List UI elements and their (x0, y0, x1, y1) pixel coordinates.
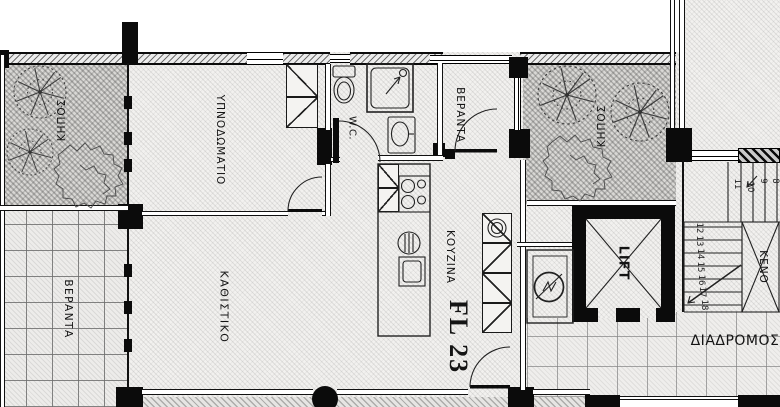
room-label-kitchen: ΚΟΥΖΙΝΑ (444, 230, 456, 284)
south-wall (337, 389, 468, 395)
bedroom-wc-wall (325, 64, 331, 130)
stair-number: 11 (732, 179, 742, 190)
stair-number: 12 (694, 223, 704, 234)
lift-wall-east (661, 219, 675, 322)
room-label-veranda-top: ΒΕΡΑΝΤΑ (454, 87, 466, 143)
column (666, 128, 692, 162)
stair-number: 18 (699, 300, 709, 311)
sliding-door-tick (124, 159, 132, 172)
sliding-door-tick (124, 301, 132, 314)
sliding-door-tick (124, 96, 132, 109)
bedroom-living-wall (142, 211, 288, 216)
unit-label: FL 23 (443, 300, 473, 374)
boundary-line-left (0, 55, 5, 407)
kitchen-cabinet (378, 188, 399, 212)
south-wall (533, 389, 590, 395)
stair-number: 10 (745, 182, 755, 193)
column (509, 129, 530, 158)
room-label-veranda-left: ΒΕΡΑΝΤΑ (62, 279, 74, 338)
column (509, 57, 528, 78)
lift-wall-south (656, 308, 675, 322)
sliding-door-tick (124, 264, 132, 277)
corridor-south-wall (585, 395, 620, 407)
corridor-area-east (676, 312, 780, 397)
column (122, 22, 138, 63)
corridor-south-wall (738, 395, 780, 407)
room-label-living: ΚΑΘΙΣΤΙΚΟ (218, 271, 231, 344)
hall-cabinet (482, 273, 512, 303)
room-label-wc: W.C. (347, 116, 358, 140)
wall-stub (331, 157, 340, 162)
wall-chunk (445, 149, 455, 159)
stairs-west-line (682, 160, 684, 312)
wall-top-garden-right (520, 52, 676, 65)
floor-plan: ΚΗΠΟΣ ΥΠΝΟΔΩΜΑΤΙΟ ΒΕΡΑΝΤΑ ΚΑΘΙΣΤΙΚΟ W.C.… (0, 0, 780, 407)
boundary-line-right (670, 0, 675, 128)
kitchen-cabinet (378, 164, 399, 188)
room-label-garden-left: ΚΗΠΟΣ (56, 99, 68, 142)
stair-number: 15 (695, 262, 705, 273)
stair-number: 8 (770, 178, 780, 183)
stair-number: 16 (696, 275, 706, 286)
corridor-south-line (620, 396, 738, 400)
sliding-door-tick (124, 132, 132, 145)
lift-wall-west (572, 219, 586, 322)
column (508, 387, 534, 407)
bedroom-window (247, 52, 283, 65)
veranda-garden-railing (514, 78, 521, 130)
room-label-garden-right: ΚΗΠΟΣ (596, 105, 608, 148)
room-label-bedroom: ΥΠΝΟΔΩΜΑΤΙΟ (214, 95, 226, 186)
wall-chunk (317, 128, 332, 165)
wardrobe (286, 97, 318, 128)
east-wall (520, 160, 526, 390)
void-label: ΚΕΝΟ (757, 250, 769, 284)
stairs-window (684, 150, 738, 161)
lift-label: LIFT (616, 246, 631, 281)
sliding-door-tick (124, 339, 132, 352)
washing-machine (482, 213, 512, 243)
wc-veranda-wall (437, 63, 443, 155)
stair-number: 14 (695, 249, 705, 260)
lift-wall-south (572, 308, 598, 322)
corridor-label: ΔΙΑΔΡΟΜΟΣ (691, 333, 780, 349)
wc-window (330, 54, 350, 63)
corridor-area-west (527, 318, 676, 397)
stair-number: 9 (758, 178, 768, 183)
lift-wall-south (616, 308, 640, 322)
wardrobe (286, 64, 318, 97)
hall-cabinet (482, 303, 512, 333)
column (116, 387, 143, 407)
stair-number: 13 (694, 236, 704, 247)
south-wall (142, 389, 313, 395)
hall-cabinet (482, 243, 512, 273)
wc-south-wall (378, 155, 443, 161)
stairs-party-wall (738, 148, 780, 163)
lift-wall-north (572, 205, 675, 219)
closet-top-wall (517, 242, 573, 247)
stair-number: 17 (697, 287, 707, 298)
garden-veranda-divider (0, 205, 128, 211)
bedroom-kitchen-wall (325, 164, 331, 216)
